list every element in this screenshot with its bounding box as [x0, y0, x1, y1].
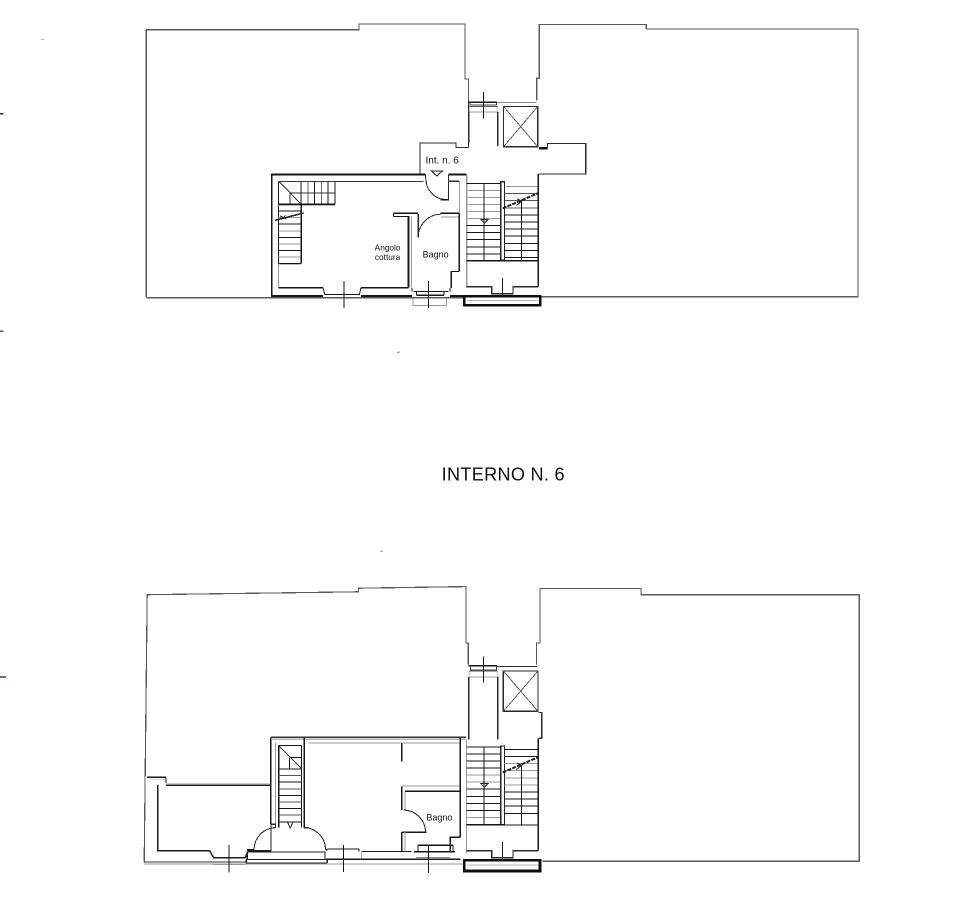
svg-text:INTERNO N. 6: INTERNO N. 6	[442, 465, 565, 485]
svg-text:Bagno: Bagno	[423, 250, 449, 260]
svg-text:Bagno: Bagno	[426, 813, 452, 823]
svg-text:Angolo: Angolo	[375, 243, 401, 253]
svg-text:Int. n. 6: Int. n. 6	[426, 156, 460, 167]
svg-text:cottura: cottura	[375, 252, 401, 262]
